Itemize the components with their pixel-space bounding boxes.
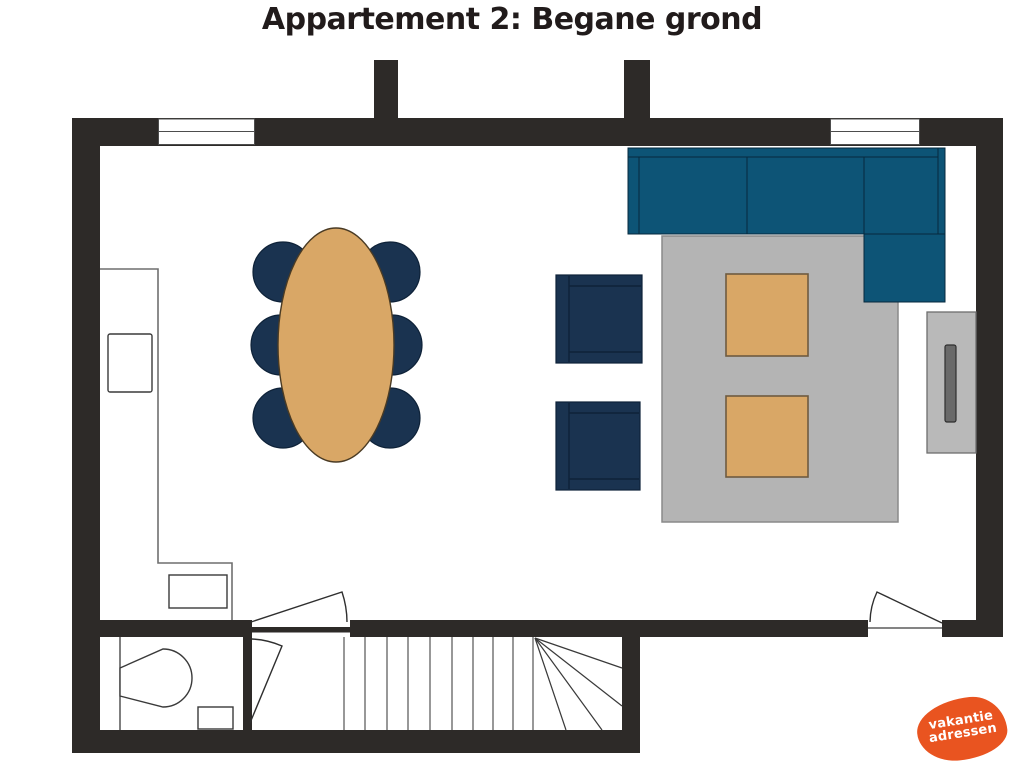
sofa-left-arm bbox=[628, 157, 639, 234]
toilet-bin bbox=[198, 707, 233, 729]
tv-cabinet bbox=[927, 312, 976, 453]
toilet bbox=[120, 649, 192, 707]
kitchen-counter bbox=[100, 269, 232, 620]
winder-steps bbox=[535, 638, 622, 730]
floorplan-page: Appartement 2: Begane grond bbox=[0, 0, 1024, 768]
wall-right bbox=[976, 118, 1003, 637]
chimney-stub-right bbox=[624, 60, 650, 118]
sofa-corner-seat bbox=[864, 157, 938, 234]
toilet-room bbox=[120, 637, 233, 730]
armchair-top bbox=[556, 275, 642, 363]
sofa-right-back bbox=[938, 148, 945, 234]
door-hall-lower bbox=[250, 639, 282, 723]
coffee-table-bottom bbox=[726, 396, 808, 477]
door-hall-to-room bbox=[251, 592, 347, 622]
wall-toilet-right bbox=[243, 620, 252, 730]
wall-bottom-right-segment bbox=[942, 620, 1003, 637]
wall-left bbox=[72, 118, 100, 753]
armchair-bottom bbox=[556, 402, 640, 490]
staircase bbox=[344, 637, 622, 730]
doors bbox=[250, 592, 942, 723]
vakantieadressen-logo: vakantie adressen bbox=[917, 698, 1007, 760]
door-bottom-right bbox=[870, 592, 942, 623]
dining-table bbox=[278, 228, 394, 462]
kitchen-sink bbox=[169, 575, 227, 608]
floorplan-drawing bbox=[0, 0, 1024, 768]
sofa-seat-2 bbox=[747, 157, 864, 234]
door-threshold-left bbox=[250, 627, 350, 633]
dining-set bbox=[251, 228, 422, 462]
wall-above-toilet bbox=[99, 620, 250, 637]
window-top-right bbox=[831, 119, 920, 145]
sofa-seat-1 bbox=[639, 157, 747, 234]
kitchen-appliance bbox=[108, 334, 152, 392]
tv bbox=[945, 345, 956, 422]
kitchen bbox=[100, 269, 232, 620]
chimney-stub-left bbox=[374, 60, 398, 118]
sofa-back bbox=[628, 148, 945, 157]
wall-stairs-right bbox=[622, 637, 640, 753]
wall-bottom-outer bbox=[72, 730, 640, 753]
wall-above-stairs bbox=[350, 620, 868, 637]
coffee-table-top bbox=[726, 274, 808, 356]
window-top-left bbox=[159, 119, 255, 145]
sofa-chaise bbox=[864, 234, 945, 302]
